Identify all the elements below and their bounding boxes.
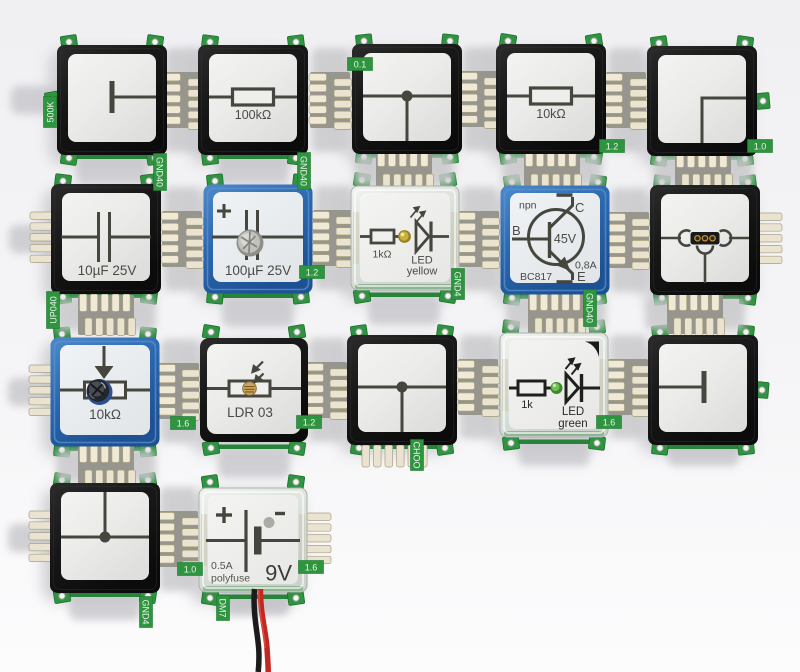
svg-text:DM7: DM7: [218, 598, 228, 617]
svg-text:green: green: [558, 418, 587, 430]
svg-text:0.1: 0.1: [354, 60, 367, 70]
svg-text:0.5A: 0.5A: [211, 560, 233, 572]
svg-text:500K: 500K: [46, 101, 56, 122]
svg-text:100kΩ: 100kΩ: [235, 108, 271, 122]
svg-text:GND40: GND40: [585, 293, 595, 323]
svg-text:CHOO: CHOO: [412, 442, 422, 469]
svg-text:polyfuse: polyfuse: [211, 573, 250, 585]
svg-text:E: E: [577, 269, 586, 284]
svg-text:45V: 45V: [554, 232, 577, 246]
svg-text:9V: 9V: [265, 561, 292, 586]
svg-text:UP040: UP040: [49, 296, 59, 324]
svg-text:1kΩ: 1kΩ: [373, 249, 392, 261]
svg-text:npn: npn: [519, 200, 537, 212]
svg-text:1.6: 1.6: [177, 419, 190, 429]
svg-text:1.0: 1.0: [184, 565, 197, 575]
svg-text:1k: 1k: [521, 399, 533, 411]
svg-text:1.6: 1.6: [603, 418, 616, 428]
svg-text:GND40: GND40: [299, 156, 309, 186]
svg-text:GND4: GND4: [141, 599, 151, 624]
svg-text:1.2: 1.2: [306, 268, 319, 278]
svg-text:BC817: BC817: [520, 271, 552, 283]
svg-text:1.2: 1.2: [606, 142, 619, 152]
svg-text:1.0: 1.0: [754, 142, 767, 152]
svg-text:GND40: GND40: [155, 157, 165, 187]
svg-text:100µF 25V: 100µF 25V: [225, 263, 291, 278]
svg-text:10kΩ: 10kΩ: [536, 107, 566, 121]
svg-text:C: C: [575, 200, 584, 215]
svg-text:1.6: 1.6: [305, 563, 318, 573]
svg-text:GND4: GND4: [453, 271, 463, 296]
svg-text:B: B: [512, 223, 521, 238]
svg-text:1.2: 1.2: [303, 418, 316, 428]
svg-text:LDR 03: LDR 03: [227, 405, 273, 420]
svg-text:10kΩ: 10kΩ: [89, 407, 121, 422]
svg-text:yellow: yellow: [407, 266, 438, 278]
svg-text:10µF 25V: 10µF 25V: [78, 263, 137, 278]
svg-text:LED: LED: [562, 406, 584, 418]
